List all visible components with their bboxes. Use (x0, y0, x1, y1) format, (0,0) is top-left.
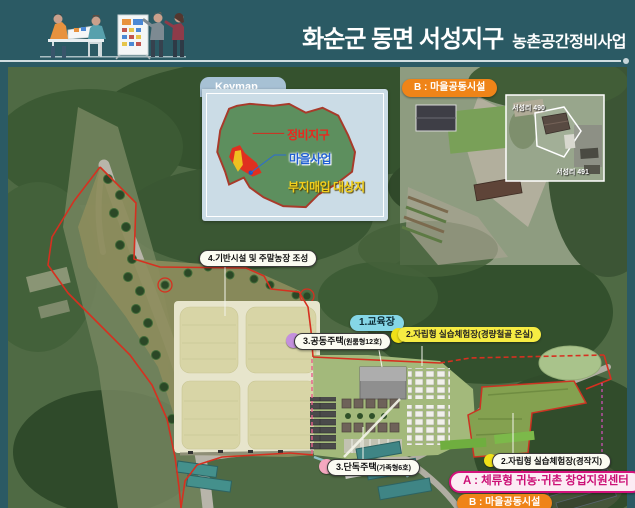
rowhouse-block (310, 397, 336, 451)
photo-inset-title: B : 마을공동시설 (402, 79, 497, 97)
title-project: 농촌공간정비사업 (512, 28, 626, 52)
pond (539, 346, 601, 380)
keymap-legend-jeongbi: 정비지구 (287, 126, 329, 143)
label-center-a: A : 체류형 귀농·귀촌 창업지원센터 (449, 471, 635, 493)
weekend-farm-plots (174, 301, 320, 454)
label-village-b: B : 마을공동시설 (457, 494, 552, 508)
greenhouse-group (408, 368, 450, 399)
header-divider-dot (623, 58, 629, 64)
header-divider (0, 60, 621, 62)
parcel-label-490: 서성리 490 (512, 103, 545, 113)
keymap-legend-maeul: 마을사업 (289, 150, 331, 167)
label-infrastructure: 4.기반시설 및 주말농장 조성 (199, 250, 317, 267)
poster: 화순군 동면 서성지구 농촌공간정비사업 (0, 0, 635, 508)
page-title: 화순군 동면 서성지구 농촌공간정비사업 (302, 19, 626, 54)
title-district: 화순군 동면 서성지구 (302, 19, 503, 54)
label-house-main: 3.단독주택 (336, 462, 377, 472)
label-practice-greenhouse: 2.자립형 실습체험장(경량철골 온실) (398, 327, 541, 342)
label-apartment-sub: (원룸형12호) (344, 339, 382, 346)
greenhouse-group (407, 405, 450, 445)
label-apartment-main: 3.공동주택 (303, 336, 344, 346)
label-apartment: 3.공동주택(원룸형12호) (294, 333, 391, 350)
label-house-sub: (가족형6호) (377, 465, 411, 472)
parcel-label-491: 서성리 491 (556, 167, 589, 177)
people-illustration (22, 6, 192, 60)
label-house: 3.단독주택(가족형6호) (327, 459, 420, 476)
label-practice-farm: 2.자립형 실습체험장(경작지) (492, 453, 611, 470)
keymap-legend-buji: 부지매입 대상지 (288, 178, 365, 195)
